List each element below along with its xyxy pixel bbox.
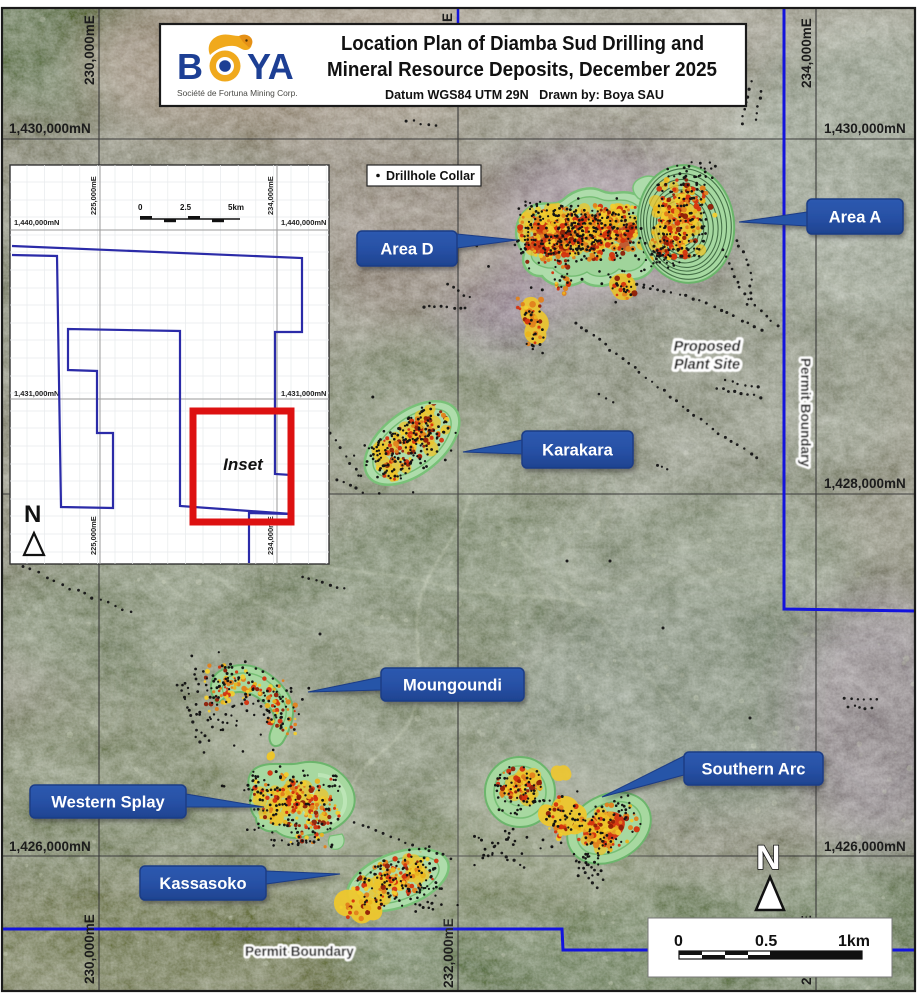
svg-text:5km: 5km bbox=[228, 203, 244, 212]
svg-text:Southern Arc: Southern Arc bbox=[702, 760, 806, 778]
svg-text:Permit Boundary: Permit Boundary bbox=[798, 358, 813, 467]
svg-text:1,426,000mN: 1,426,000mN bbox=[9, 839, 91, 854]
svg-text:YA: YA bbox=[247, 46, 294, 87]
svg-text:0.5: 0.5 bbox=[755, 933, 777, 950]
svg-text:Area D: Area D bbox=[380, 240, 433, 258]
svg-text:Kassasoko: Kassasoko bbox=[159, 875, 246, 893]
svg-text:N: N bbox=[24, 501, 41, 528]
svg-text:Proposed: Proposed bbox=[674, 339, 742, 355]
svg-text:Karakara: Karakara bbox=[542, 441, 613, 459]
svg-text:Drillhole Collar: Drillhole Collar bbox=[386, 169, 475, 183]
svg-text:Western Splay: Western Splay bbox=[51, 793, 165, 811]
svg-text:Location Plan of Diamba Sud Dr: Location Plan of Diamba Sud Drilling and bbox=[341, 33, 704, 55]
svg-text:Moungoundi: Moungoundi bbox=[403, 676, 502, 694]
svg-text:E: E bbox=[440, 13, 455, 22]
svg-text:Inset: Inset bbox=[223, 455, 264, 474]
svg-text:Datum WGS84 UTM 29N Drawn by: Datum WGS84 UTM 29N Drawn by: Boya SAU bbox=[385, 88, 664, 102]
svg-text:0: 0 bbox=[138, 203, 143, 212]
svg-text:234,000mE: 234,000mE bbox=[266, 176, 275, 215]
svg-text:234,000mE: 234,000mE bbox=[799, 18, 814, 88]
svg-text:225,000mE: 225,000mE bbox=[89, 516, 98, 555]
svg-text:1,431,000mN: 1,431,000mN bbox=[281, 389, 326, 398]
svg-text:2.5: 2.5 bbox=[180, 203, 192, 212]
svg-text:Area A: Area A bbox=[829, 208, 882, 226]
svg-text:232,000mE: 232,000mE bbox=[441, 918, 456, 988]
svg-text:Plant Site: Plant Site bbox=[674, 357, 740, 373]
svg-text:1,431,000mN: 1,431,000mN bbox=[14, 389, 59, 398]
svg-text:Société de Fortuna Mining Corp: Société de Fortuna Mining Corp. bbox=[177, 88, 298, 98]
svg-text:1,440,000mN: 1,440,000mN bbox=[14, 218, 59, 227]
svg-text:1,440,000mN: 1,440,000mN bbox=[281, 218, 326, 227]
svg-text:1,428,000mN: 1,428,000mN bbox=[824, 476, 906, 491]
svg-text:Mineral Resource Deposits, Dec: Mineral Resource Deposits, December 2025 bbox=[327, 59, 717, 81]
svg-text:225,000mE: 225,000mE bbox=[89, 176, 98, 215]
svg-text:1km: 1km bbox=[838, 933, 870, 950]
svg-text:230,000mE: 230,000mE bbox=[82, 914, 97, 984]
svg-text:230,000mE: 230,000mE bbox=[82, 15, 97, 85]
svg-text:1,430,000mN: 1,430,000mN bbox=[824, 121, 906, 136]
svg-text:1,430,000mN: 1,430,000mN bbox=[9, 121, 91, 136]
svg-text:1,426,000mN: 1,426,000mN bbox=[824, 839, 906, 854]
svg-text:0: 0 bbox=[674, 933, 683, 950]
svg-text:Permit Boundary: Permit Boundary bbox=[245, 944, 354, 959]
svg-text:N: N bbox=[756, 839, 781, 877]
svg-text:B: B bbox=[177, 46, 203, 87]
